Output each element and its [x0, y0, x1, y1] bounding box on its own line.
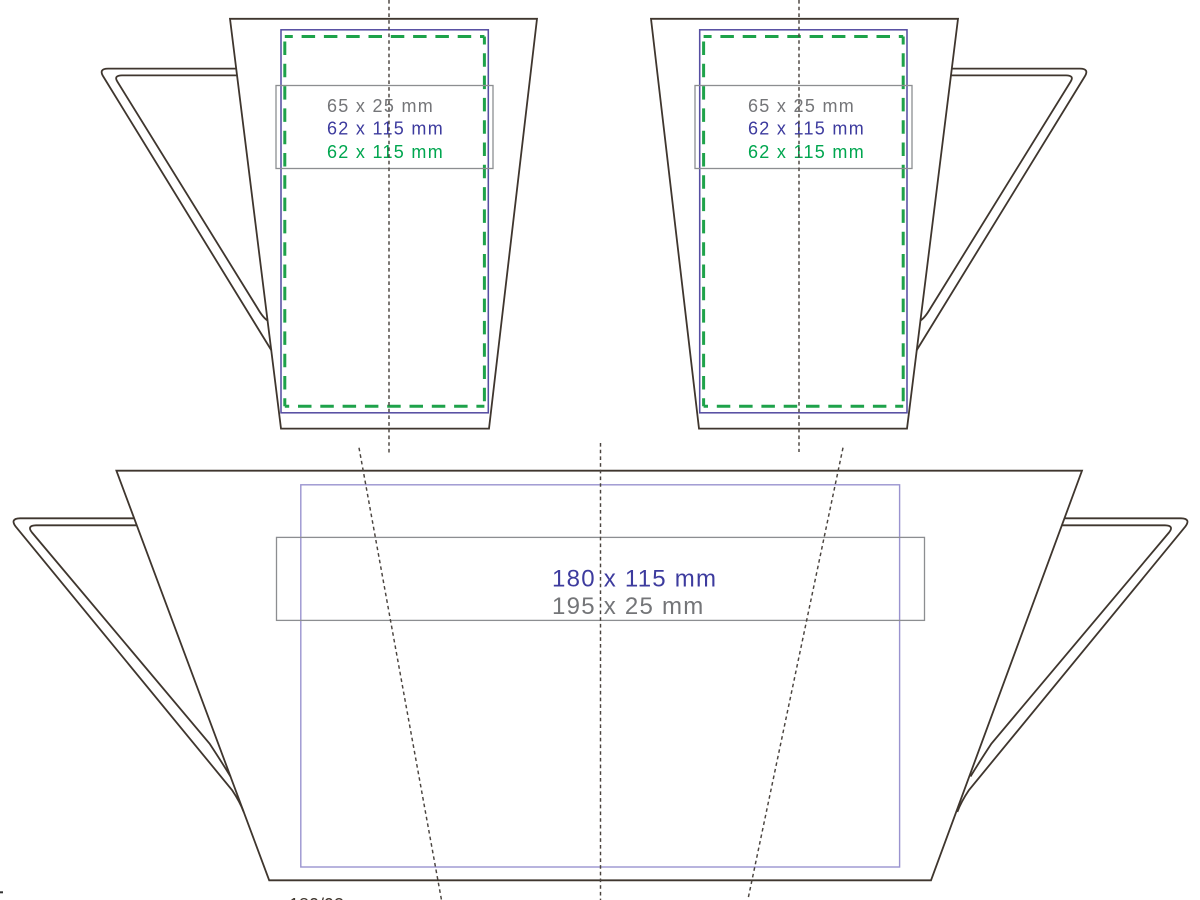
svg-text:65 x 25 mm: 65 x 25 mm	[748, 96, 855, 116]
svg-text:65 x 25 mm: 65 x 25 mm	[327, 96, 434, 116]
svg-text:62 x 115 mm: 62 x 115 mm	[748, 119, 865, 139]
svg-text:180/93: 180/93	[289, 895, 344, 900]
svg-text:62 x 115 mm: 62 x 115 mm	[327, 142, 444, 162]
svg-text:180 x 115 mm: 180 x 115 mm	[552, 566, 717, 593]
svg-text:195 x 25 mm: 195 x 25 mm	[552, 593, 704, 620]
svg-text:62 x 115 mm: 62 x 115 mm	[748, 142, 865, 162]
svg-text:62 x 115 mm: 62 x 115 mm	[327, 119, 444, 139]
